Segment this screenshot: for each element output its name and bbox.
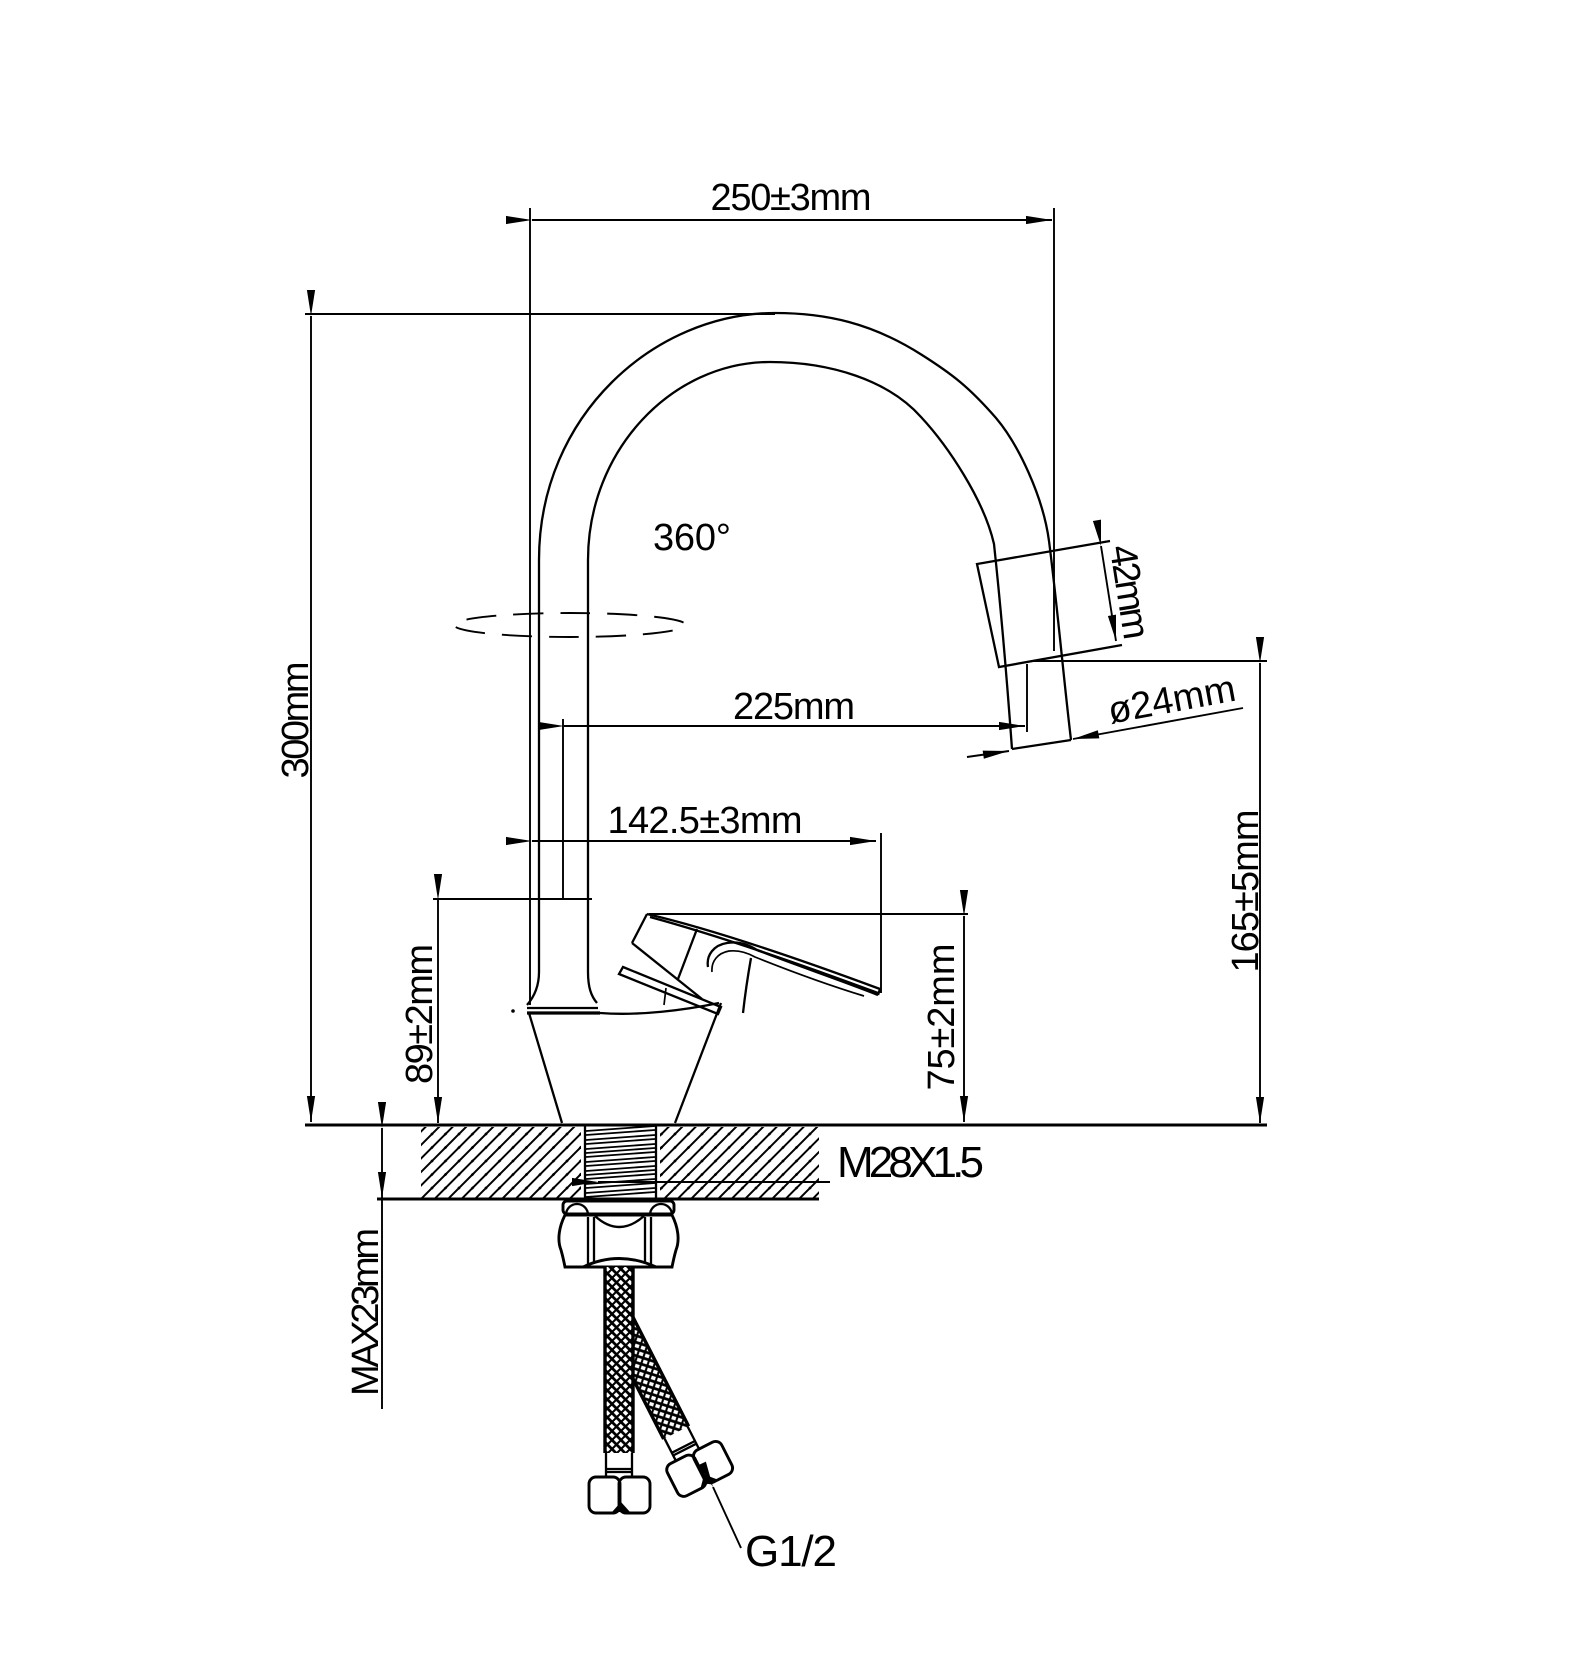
svg-text:300mm: 300mm — [275, 662, 317, 779]
svg-text:250±3mm: 250±3mm — [711, 177, 872, 219]
svg-text:89±2mm: 89±2mm — [399, 944, 441, 1084]
svg-text:142.5±3mm: 142.5±3mm — [608, 800, 803, 842]
svg-text:165±5mm: 165±5mm — [1225, 810, 1267, 973]
svg-text:M28X1.5: M28X1.5 — [837, 1138, 984, 1187]
svg-text:360°: 360° — [653, 517, 731, 559]
svg-text:G1/2: G1/2 — [745, 1527, 837, 1576]
svg-text:MAX23mm: MAX23mm — [345, 1228, 387, 1396]
svg-text:225mm: 225mm — [733, 686, 855, 728]
svg-text:75±2mm: 75±2mm — [921, 944, 963, 1091]
